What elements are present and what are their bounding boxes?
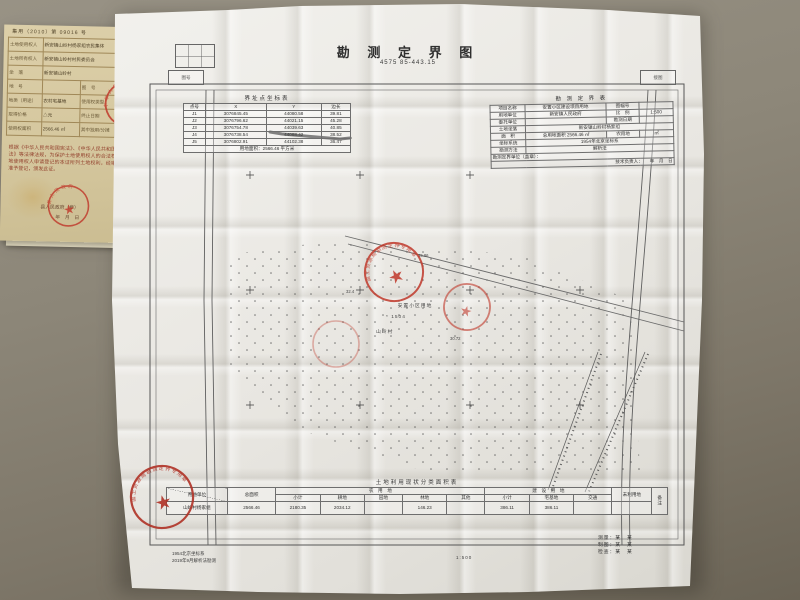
cell: J1 [184, 111, 206, 118]
cell: 3076738.54 [205, 132, 266, 139]
datum-note: 1954北京坐标系 [172, 551, 205, 557]
surveyor-line: 测量：某 某 [598, 535, 633, 542]
cell: 45.28 [321, 118, 350, 125]
elevation-label: 35.86 [418, 253, 428, 258]
table-row: J53076802.9144102.3836.47 [184, 139, 351, 146]
map-title: 勘 测 定 界 图 [298, 42, 518, 61]
drafter-line: 制图：某 某 [598, 542, 633, 549]
col-header: 总面积 [227, 488, 275, 502]
col-header: 备注 [652, 488, 668, 515]
sign-value: 某 某 [615, 543, 632, 548]
road-left-line [204, 90, 208, 545]
cell: J5 [184, 139, 206, 146]
checker-line: 检查：某 某 [598, 549, 633, 556]
cell: 44088.42 [266, 132, 321, 139]
table-row: 山岭村杨家组 2566.46 2180.35 2034.12 146.23 38… [167, 502, 668, 515]
table-row: J43076738.5444088.4238.52 [184, 132, 351, 139]
col-header: 点号 [184, 104, 206, 111]
cell: 39.81 [321, 111, 350, 118]
signature-block: 测量：某 某 制图：某 某 检查：某 某 [598, 535, 633, 556]
cell: 38.52 [321, 132, 350, 139]
survey-info-block: 勘 测 定 界 表 项目名称安置小区建设项目用地图幅号 用地单位新安镇人民政府比… [489, 92, 674, 169]
photo-of-survey-map: { "certificate": { "serial": "集用（2010）第 … [0, 0, 800, 600]
cell: 3076845.45 [205, 111, 266, 118]
cell: 3076802.91 [205, 139, 266, 146]
sign-value: 某 某 [615, 550, 632, 555]
vegetation-label: * 1504 [386, 315, 406, 320]
table-footer-row: 用地面积：2566.46 平方米 [184, 146, 351, 153]
cell: 36.47 [321, 139, 350, 146]
cell: 2034.12 [320, 502, 364, 515]
star-icon: ★ [62, 201, 76, 218]
cell [447, 502, 485, 515]
survey-info-table: 项目名称安置小区建设项目用地图幅号 用地单位新安镇人民政府比 例1:500 委托… [489, 101, 674, 169]
sign-label: 检查： [598, 550, 615, 555]
vegetation-dots-area [225, 240, 640, 470]
legend-grid-box [175, 44, 215, 68]
cell: 44102.38 [266, 139, 321, 146]
sign-label: 制图： [598, 543, 615, 548]
col-header: 用地单位 [167, 488, 228, 502]
road-left-line [212, 90, 216, 545]
col-header: 边长 [321, 104, 350, 111]
col-header: 建 设 用 地 [485, 488, 612, 495]
landuse-table: 用地单位 总面积 农 用 地 建 设 用 地 未利用地 备注 小计 耕地 园地 … [166, 487, 668, 515]
col-header: 农 用 地 [276, 488, 485, 495]
village-label: 山岭村 [376, 328, 393, 335]
col-header: 耕地 [320, 495, 364, 502]
cell [574, 502, 612, 515]
col-header: 林地 [403, 495, 447, 502]
landuse-table-block: 土地利用现状分类面积表 用地单位 总面积 农 用 地 建 设 用 地 未利用地 … [166, 478, 668, 515]
coordinate-table-caption: 界址点坐标表 [183, 94, 351, 102]
elevation-label: 32.4 [346, 289, 354, 294]
area-total: 用地面积：2566.46 平方米 [184, 146, 351, 153]
elevation-label: 30.72 [450, 336, 460, 341]
landuse-caption: 土地利用现状分类面积表 [166, 478, 668, 486]
cell: 3076796.62 [205, 118, 266, 125]
cell: 山岭村杨家组 [167, 502, 228, 515]
parcel-label: 安置小区用地 [370, 302, 460, 309]
cell: J3 [184, 125, 206, 132]
table-header-row: 点号 X Y 边长 [184, 104, 351, 111]
scale-label: 1:500 [456, 555, 472, 561]
col-header: 宅基地 [529, 495, 573, 502]
survey-map-sheet: 勘 测 定 界 图 4575 85-443.15 图号 接图 界址点坐标表 点号… [108, 4, 708, 596]
cell: 3076754.78 [205, 125, 266, 132]
col-header: 园地 [364, 495, 402, 502]
cell: 386.11 [529, 502, 573, 515]
sheet-number-box: 图号 [168, 70, 204, 85]
sign-label: 测量： [598, 536, 615, 541]
map-subtitle: 4575 85-443.15 [298, 60, 518, 66]
coordinate-table-block: 界址点坐标表 点号 X Y 边长 J13076845.4544080.5839.… [183, 94, 351, 153]
col-header: Y [266, 104, 321, 111]
table-row: J23076796.6244021.1545.28 [184, 118, 351, 125]
cell: J4 [184, 132, 206, 139]
col-header: 交通 [574, 495, 612, 502]
coordinate-table: 点号 X Y 边长 J13076845.4544080.5839.81 J230… [183, 103, 351, 153]
cell [364, 502, 402, 515]
table-header-row: 用地单位 总面积 农 用 地 建 设 用 地 未利用地 备注 [167, 488, 668, 495]
cell: 40.85 [321, 125, 350, 132]
method-note: 2019年9月解析法勘测 [172, 558, 216, 564]
sign-value: 某 某 [615, 536, 632, 541]
cell [612, 502, 652, 515]
adjoining-sheet-box: 接图 [640, 70, 676, 85]
cell: 386.11 [485, 502, 529, 515]
table-row: J33076754.7844039.6340.85 [184, 125, 351, 132]
cell: 44039.63 [266, 125, 321, 132]
col-header: 小计 [276, 495, 320, 502]
col-header: 小计 [485, 495, 529, 502]
cell: 2180.35 [276, 502, 320, 515]
cell: 44021.15 [266, 118, 321, 125]
cell: 44080.58 [266, 111, 321, 118]
col-header: 其他 [447, 495, 485, 502]
cell: 2566.46 [227, 502, 275, 515]
table-row: J13076845.4544080.5839.81 [184, 111, 351, 118]
cell: J2 [184, 118, 206, 125]
cell: 146.23 [403, 502, 447, 515]
col-header: X [205, 104, 266, 111]
government-seal-icon: ★ 县人民政府 [43, 180, 92, 230]
col-header: 未利用地 [612, 488, 652, 502]
